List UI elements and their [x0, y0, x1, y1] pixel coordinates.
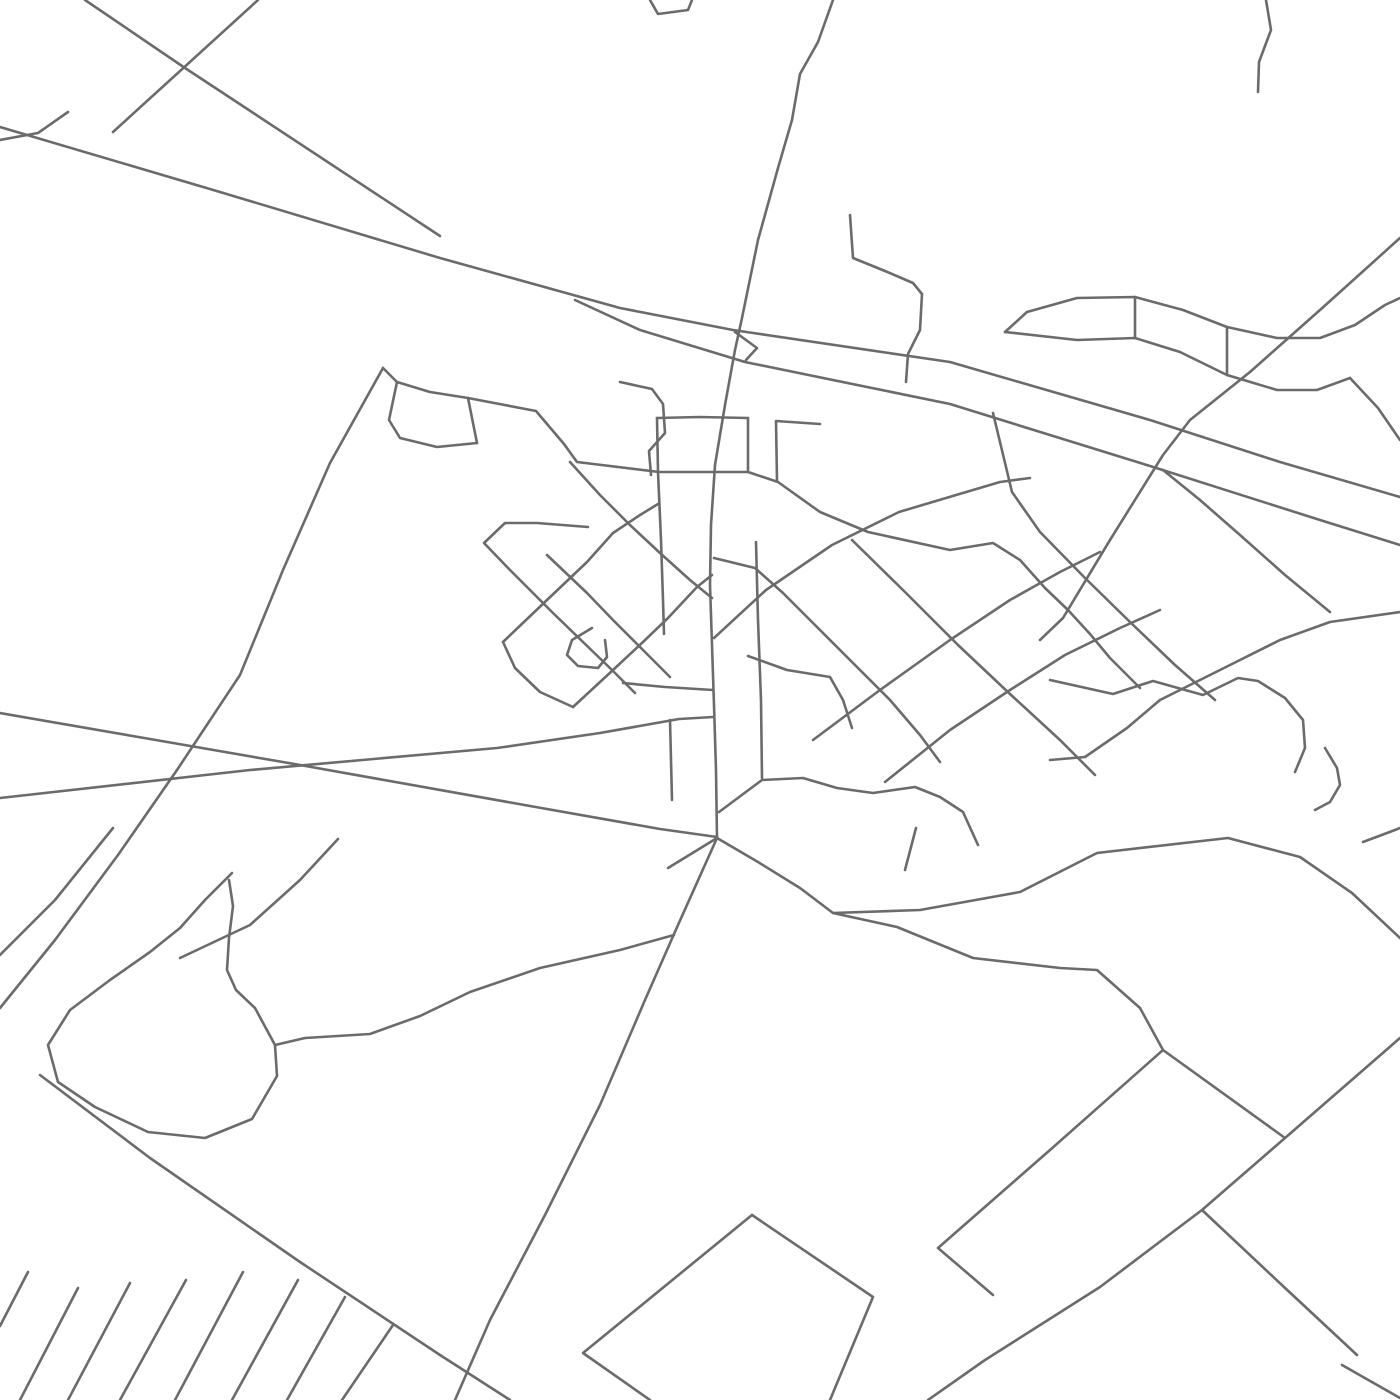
road-hatch-mark-8 [342, 1325, 393, 1400]
road-hatch-mark-4 [120, 1280, 186, 1400]
road-main-street-north [710, 0, 833, 838]
road-se-branch-road [1202, 1210, 1357, 1355]
road-town-vertical-street [657, 418, 664, 634]
road-se-corner-stub [1342, 1365, 1400, 1398]
road-field-block-a-east [752, 1215, 873, 1400]
road-east-connector-top [776, 421, 820, 481]
road-east-wavy-street-c [1160, 612, 1400, 700]
road-west-long-diagonal [0, 368, 383, 1008]
road-hatch-mark-1 [0, 1272, 28, 1326]
road-north-row-street [657, 417, 748, 418]
road-south-diagonal-road [455, 838, 717, 1400]
road-south-stub [905, 828, 916, 870]
road-south-row-street [623, 683, 713, 690]
road-sw-cross-street-b [573, 575, 712, 707]
road-sw-diagonal-upper [570, 462, 712, 598]
road-south-loop-street [719, 778, 978, 845]
road-river-road-a [717, 838, 1400, 938]
road-top-edge-notch [650, 0, 692, 14]
road-west-diagonal-mid [180, 839, 338, 958]
road-east-hook-street [1315, 748, 1340, 810]
road-hook-street [748, 656, 852, 728]
road-hatch-mark-3 [68, 1283, 130, 1400]
road-north-band-road-a [1005, 332, 1350, 390]
road-hatch-mark-2 [20, 1288, 78, 1400]
road-east-edge-piece [1363, 828, 1400, 842]
road-ne-cross-street-c [714, 558, 940, 762]
road-nw-cross-road-long [85, 0, 440, 236]
map-page [0, 0, 1400, 1400]
road-west-straight-road-a [0, 717, 713, 798]
road-ne-diagonal-c [885, 610, 1160, 782]
road-map-image [0, 0, 1400, 1400]
road-nw-block-east-side [468, 398, 477, 443]
road-north-band-road-b [1027, 297, 1400, 338]
road-mid-stub [670, 720, 672, 800]
road-nw-cross-road-steep [113, 0, 258, 132]
road-top-right-stub [1258, 0, 1271, 92]
road-hatch-mark-5 [175, 1272, 243, 1400]
road-sw-diagonal-inner [547, 555, 670, 677]
road-sw-outer-loop [484, 523, 635, 693]
road-hatch-mark-6 [232, 1280, 298, 1400]
road-east-cross-street [1163, 470, 1330, 612]
road-sw-long-diagonal [40, 1075, 510, 1400]
road-pond-road-east [275, 935, 674, 1045]
road-ne-cross-street-a [852, 540, 1095, 775]
road-field-block-b-west [938, 1050, 1163, 1295]
road-se-long-diagonal [928, 1038, 1400, 1400]
road-field-block-b-east [1163, 1050, 1285, 1138]
road-ne-cross-street-b [993, 413, 1215, 700]
road-sw-corner-link [503, 642, 573, 707]
road-sw-cross-street-a [503, 504, 658, 642]
road-field-block-a-west [583, 1215, 752, 1400]
road-pond-loop-road [48, 873, 277, 1138]
road-band-left-close [1005, 312, 1027, 332]
road-east-wavy-street-b [1050, 700, 1160, 760]
road-ne-diagonal-b [813, 552, 1100, 740]
road-band-east-link [1350, 378, 1400, 440]
road-hatch-mark-7 [287, 1297, 345, 1400]
road-river-road-b [833, 913, 1163, 1050]
road-town-spine-road [383, 368, 1140, 688]
